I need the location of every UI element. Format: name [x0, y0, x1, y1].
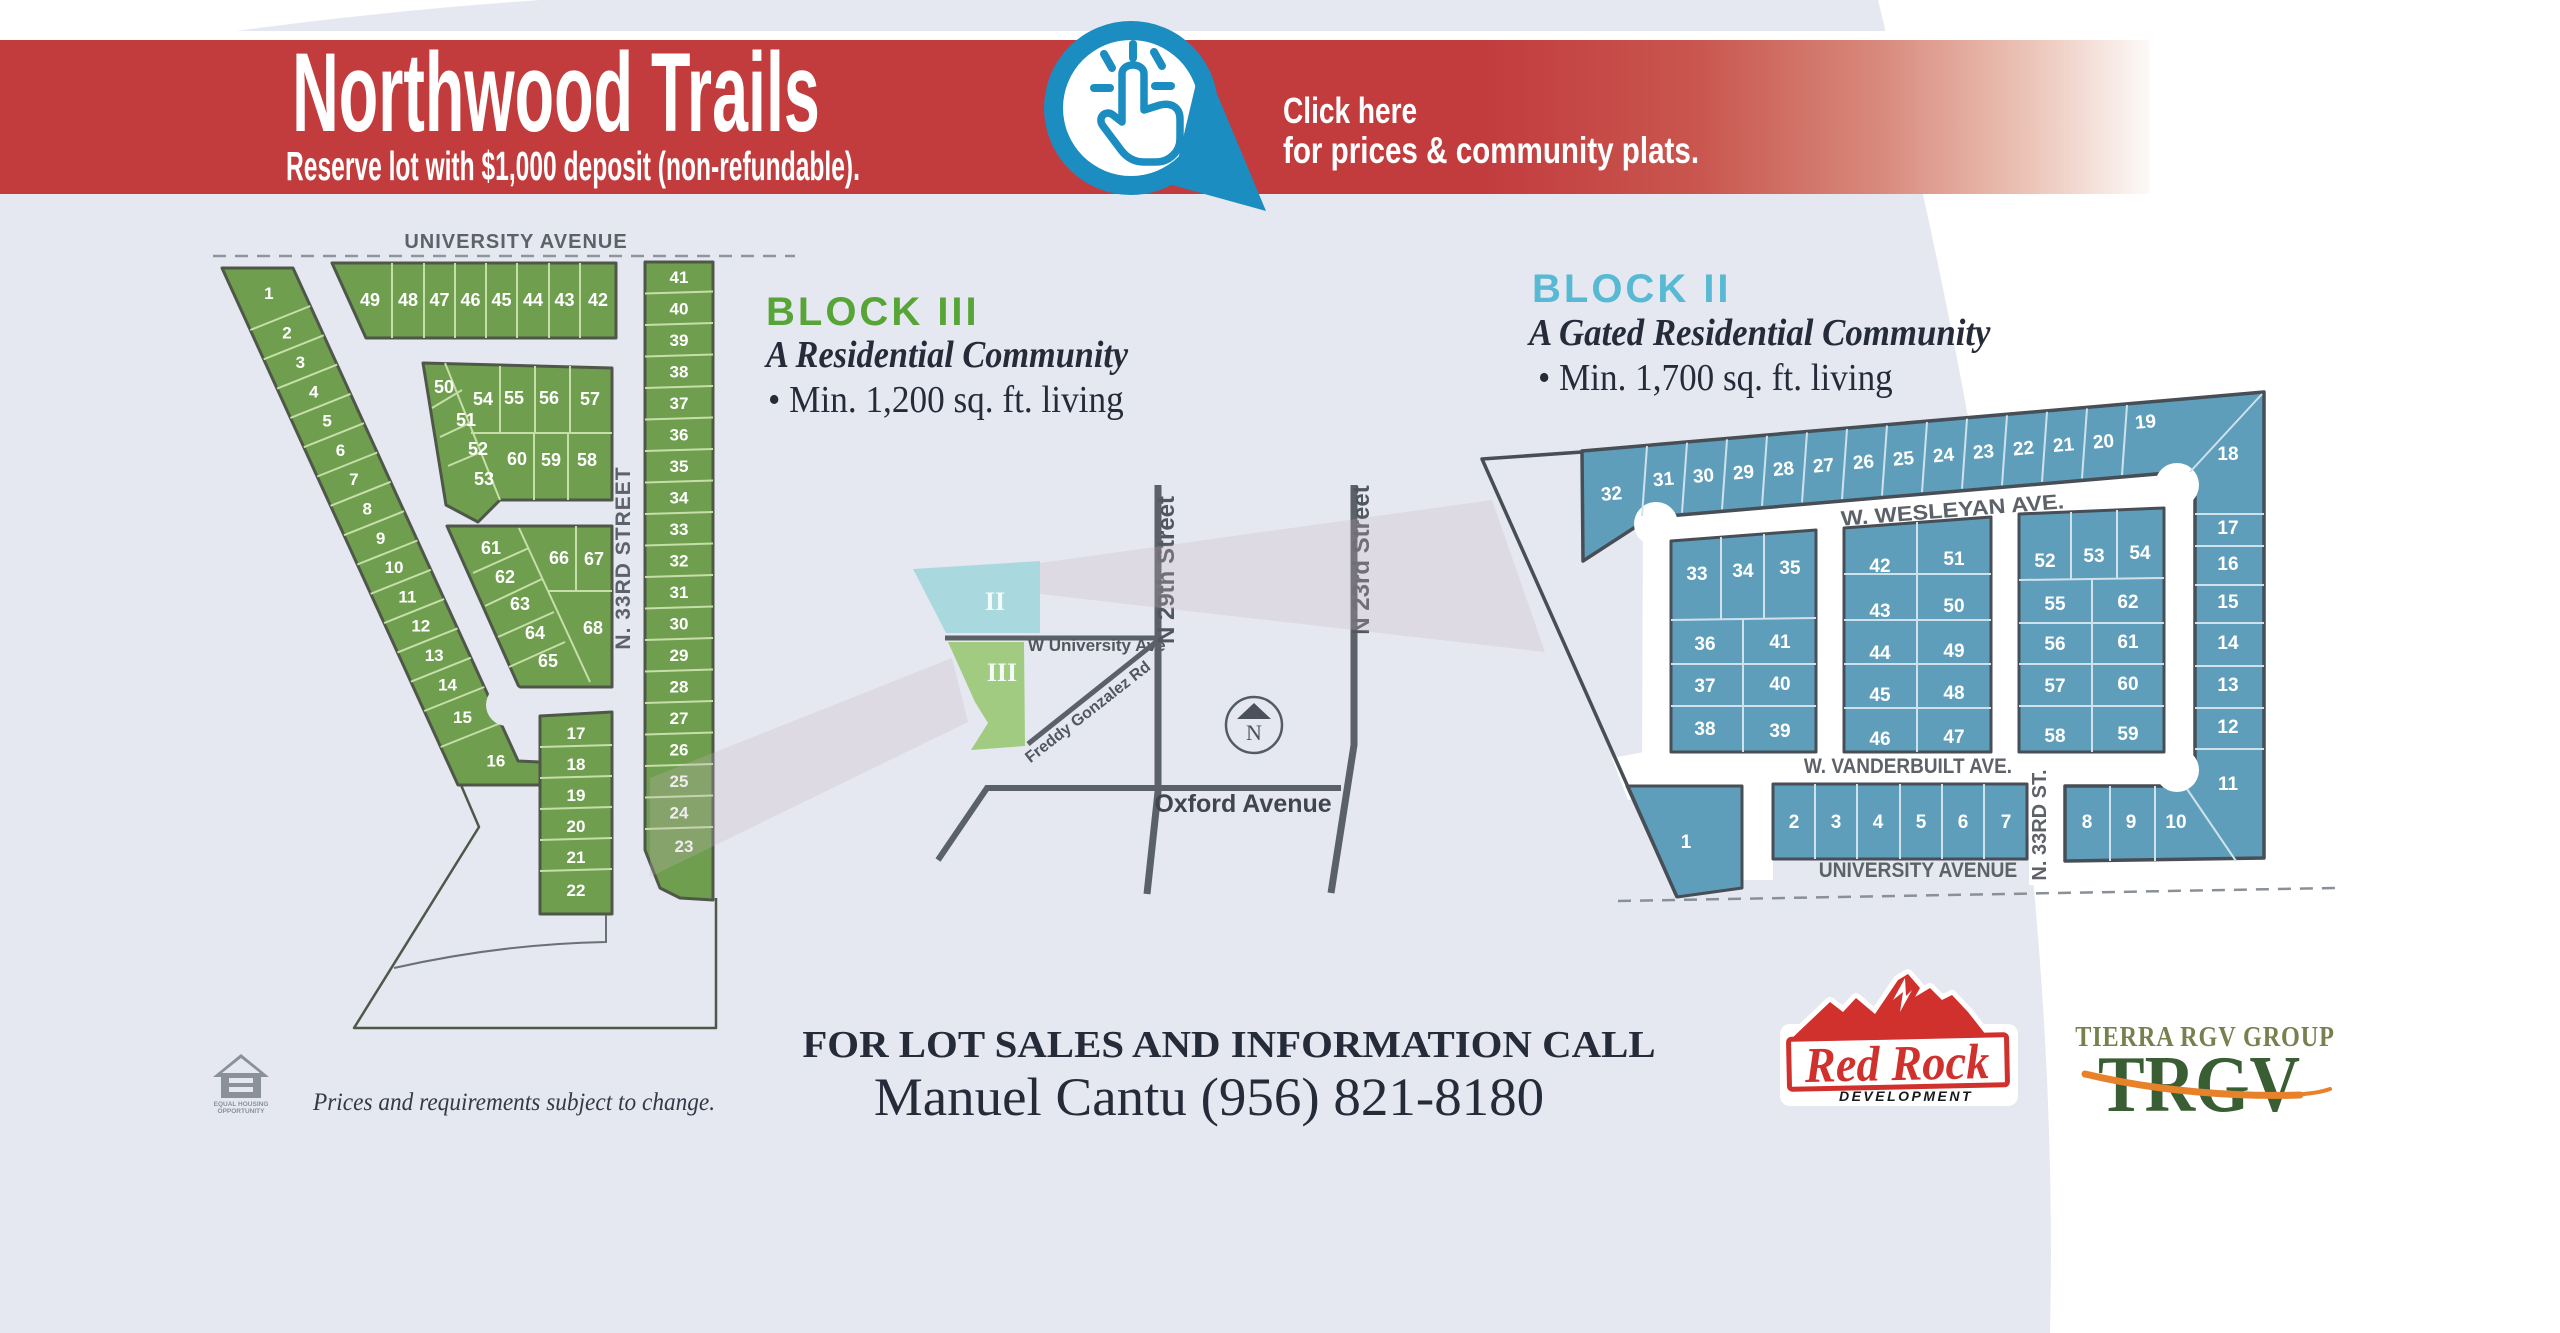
- svg-text:11: 11: [2218, 774, 2239, 795]
- svg-text:17: 17: [2217, 518, 2238, 539]
- svg-text:Click here: Click here: [1283, 91, 1417, 131]
- svg-text:13: 13: [425, 646, 444, 665]
- svg-text:54: 54: [473, 389, 493, 409]
- svg-text:37: 37: [1694, 676, 1715, 697]
- svg-text:N: N: [1246, 720, 1262, 745]
- svg-text:UNIVERSITY AVENUE: UNIVERSITY AVENUE: [404, 231, 627, 253]
- svg-text:• Min. 1,200 sq. ft. living: • Min. 1,200 sq. ft. living: [768, 378, 1124, 421]
- svg-text:56: 56: [539, 388, 559, 408]
- svg-text:62: 62: [495, 567, 515, 587]
- svg-text:50: 50: [434, 377, 454, 397]
- svg-text:6: 6: [1958, 812, 1969, 833]
- svg-text:46: 46: [460, 290, 480, 310]
- svg-text:8: 8: [363, 500, 372, 519]
- svg-text:Red Rock: Red Rock: [1803, 1035, 1990, 1094]
- svg-text:17: 17: [567, 724, 586, 743]
- svg-text:34: 34: [1732, 561, 1754, 582]
- svg-text:1: 1: [264, 284, 273, 303]
- svg-text:43: 43: [554, 290, 574, 310]
- svg-text:46: 46: [1869, 729, 1890, 750]
- svg-text:65: 65: [538, 651, 558, 671]
- svg-text:58: 58: [2044, 726, 2065, 747]
- svg-text:45: 45: [491, 290, 511, 310]
- svg-text:11: 11: [398, 587, 416, 606]
- svg-text:43: 43: [1869, 601, 1890, 622]
- svg-text:33: 33: [670, 520, 689, 539]
- svg-text:27: 27: [670, 709, 689, 728]
- svg-text:41: 41: [1769, 632, 1791, 653]
- svg-text:49: 49: [1943, 641, 1964, 662]
- svg-text:16: 16: [486, 751, 505, 770]
- svg-text:5: 5: [322, 412, 331, 431]
- svg-text:14: 14: [438, 675, 457, 694]
- svg-text:W. VANDERBUILT AVE.: W. VANDERBUILT AVE.: [1804, 755, 2012, 778]
- svg-text:36: 36: [1694, 634, 1715, 655]
- svg-text:58: 58: [577, 450, 597, 470]
- svg-text:10: 10: [385, 558, 404, 577]
- svg-text:53: 53: [2083, 546, 2104, 567]
- svg-text:5: 5: [1916, 812, 1927, 833]
- svg-text:52: 52: [2034, 551, 2055, 572]
- svg-text:41: 41: [670, 268, 689, 287]
- svg-text:51: 51: [1943, 549, 1965, 570]
- svg-text:44: 44: [523, 290, 543, 310]
- svg-text:• Min. 1,700 sq. ft. living: • Min. 1,700 sq. ft. living: [1538, 356, 1893, 399]
- svg-text:16: 16: [2217, 554, 2238, 575]
- svg-text:6: 6: [336, 441, 345, 460]
- svg-text:10: 10: [2165, 812, 2186, 833]
- svg-text:37: 37: [670, 394, 689, 413]
- svg-text:24: 24: [1932, 445, 1955, 468]
- svg-text:53: 53: [474, 469, 494, 489]
- svg-text:27: 27: [1812, 455, 1835, 478]
- svg-text:67: 67: [584, 549, 604, 569]
- svg-text:26: 26: [1852, 451, 1875, 474]
- svg-text:A Gated Residential Community: A Gated Residential Community: [1527, 312, 1991, 354]
- svg-text:II: II: [985, 587, 1005, 616]
- svg-text:33: 33: [1686, 564, 1707, 585]
- svg-text:for prices & community plats.: for prices & community plats.: [1283, 131, 1699, 172]
- svg-text:50: 50: [1943, 596, 1964, 617]
- svg-text:42: 42: [588, 290, 608, 310]
- svg-text:34: 34: [670, 489, 689, 508]
- svg-text:59: 59: [541, 450, 561, 470]
- svg-text:18: 18: [2217, 444, 2238, 465]
- svg-text:29: 29: [1732, 462, 1755, 485]
- svg-text:20: 20: [2092, 431, 2115, 454]
- svg-text:57: 57: [2044, 676, 2065, 697]
- svg-text:40: 40: [670, 300, 689, 319]
- svg-text:III: III: [987, 658, 1017, 687]
- svg-text:9: 9: [376, 529, 385, 548]
- svg-text:32: 32: [1600, 483, 1623, 506]
- svg-text:BLOCK II: BLOCK II: [1532, 267, 1732, 311]
- svg-text:4: 4: [1873, 812, 1884, 833]
- svg-text:18: 18: [567, 755, 586, 774]
- svg-text:UNIVERSITY AVENUE: UNIVERSITY AVENUE: [1819, 859, 2017, 882]
- svg-text:63: 63: [510, 594, 530, 614]
- svg-text:2: 2: [282, 324, 291, 343]
- svg-text:54: 54: [2129, 543, 2151, 564]
- svg-text:61: 61: [481, 538, 501, 558]
- svg-text:30: 30: [670, 615, 689, 634]
- svg-text:15: 15: [2217, 592, 2239, 613]
- svg-text:28: 28: [1772, 458, 1795, 481]
- svg-text:Oxford Avenue: Oxford Avenue: [1154, 790, 1331, 818]
- svg-text:40: 40: [1769, 674, 1790, 695]
- svg-text:57: 57: [580, 389, 600, 409]
- svg-text:N. 33RD ST.: N. 33RD ST.: [2029, 769, 2051, 880]
- svg-text:36: 36: [670, 426, 689, 445]
- svg-text:44: 44: [1869, 643, 1891, 664]
- svg-text:61: 61: [2117, 632, 2139, 653]
- svg-text:14: 14: [2217, 633, 2239, 654]
- svg-text:28: 28: [670, 678, 689, 697]
- svg-text:12: 12: [411, 617, 430, 636]
- svg-text:N. 33RD STREET: N. 33RD STREET: [612, 466, 635, 649]
- svg-text:49: 49: [360, 290, 380, 310]
- svg-text:66: 66: [549, 548, 569, 568]
- svg-text:2: 2: [1789, 812, 1800, 833]
- svg-text:4: 4: [309, 382, 319, 401]
- svg-text:19: 19: [2134, 411, 2157, 434]
- svg-text:26: 26: [670, 741, 689, 760]
- svg-text:32: 32: [670, 552, 689, 571]
- svg-text:30: 30: [1692, 465, 1715, 488]
- svg-text:64: 64: [525, 623, 545, 643]
- svg-text:22: 22: [2012, 438, 2035, 461]
- svg-text:DEVELOPMENT: DEVELOPMENT: [1839, 1088, 1973, 1104]
- svg-text:19: 19: [567, 786, 586, 805]
- svg-text:42: 42: [1869, 556, 1890, 577]
- svg-text:31: 31: [670, 583, 689, 602]
- svg-text:51: 51: [456, 410, 476, 430]
- svg-text:39: 39: [1769, 721, 1790, 742]
- svg-text:15: 15: [453, 708, 472, 727]
- svg-text:29: 29: [670, 646, 689, 665]
- svg-text:1: 1: [1681, 832, 1692, 853]
- svg-text:3: 3: [1831, 812, 1842, 833]
- svg-text:35: 35: [1779, 558, 1801, 579]
- svg-text:EQUAL HOUSING: EQUAL HOUSING: [214, 1101, 269, 1108]
- svg-text:20: 20: [567, 817, 586, 836]
- svg-text:Manuel Cantu (956) 821-8180: Manuel Cantu (956) 821-8180: [874, 1066, 1544, 1126]
- svg-text:22: 22: [567, 881, 586, 900]
- svg-text:7: 7: [349, 470, 358, 489]
- svg-text:62: 62: [2117, 592, 2138, 613]
- svg-text:45: 45: [1869, 685, 1891, 706]
- svg-text:60: 60: [507, 449, 527, 469]
- svg-text:8: 8: [2082, 812, 2093, 833]
- svg-text:7: 7: [2001, 812, 2012, 833]
- svg-text:52: 52: [468, 439, 488, 459]
- svg-text:35: 35: [670, 457, 689, 476]
- svg-text:12: 12: [2217, 717, 2238, 738]
- svg-text:38: 38: [670, 363, 689, 382]
- svg-text:Reserve lot with $1,000 deposi: Reserve lot with $1,000 deposit (non-ref…: [286, 144, 860, 190]
- svg-text:48: 48: [398, 290, 418, 310]
- svg-text:31: 31: [1652, 469, 1675, 492]
- svg-text:38: 38: [1694, 719, 1715, 740]
- svg-text:25: 25: [1892, 448, 1915, 471]
- svg-text:13: 13: [2217, 675, 2238, 696]
- svg-text:55: 55: [2044, 594, 2066, 615]
- svg-text:21: 21: [2052, 434, 2075, 457]
- svg-text:47: 47: [429, 290, 449, 310]
- svg-text:FOR LOT SALES AND INFORMATION: FOR LOT SALES AND INFORMATION CALL: [802, 1023, 1655, 1065]
- svg-text:BLOCK III: BLOCK III: [766, 290, 980, 334]
- svg-text:59: 59: [2117, 724, 2138, 745]
- svg-text:9: 9: [2126, 812, 2137, 833]
- svg-text:Northwood Trails: Northwood Trails: [292, 31, 820, 156]
- svg-text:OPPORTUNITY: OPPORTUNITY: [218, 1108, 266, 1115]
- svg-text:56: 56: [2044, 634, 2065, 655]
- svg-text:3: 3: [296, 353, 305, 372]
- svg-text:55: 55: [504, 388, 524, 408]
- svg-text:Prices and requirements subjec: Prices and requirements subject to chang…: [312, 1088, 715, 1116]
- svg-text:A Residential Community: A Residential Community: [764, 333, 1129, 375]
- svg-text:48: 48: [1943, 683, 1964, 704]
- svg-text:21: 21: [567, 848, 586, 867]
- svg-text:23: 23: [1972, 441, 1995, 464]
- svg-text:68: 68: [583, 618, 603, 638]
- svg-text:60: 60: [2117, 674, 2138, 695]
- svg-text:39: 39: [670, 331, 689, 350]
- svg-text:47: 47: [1943, 727, 1964, 748]
